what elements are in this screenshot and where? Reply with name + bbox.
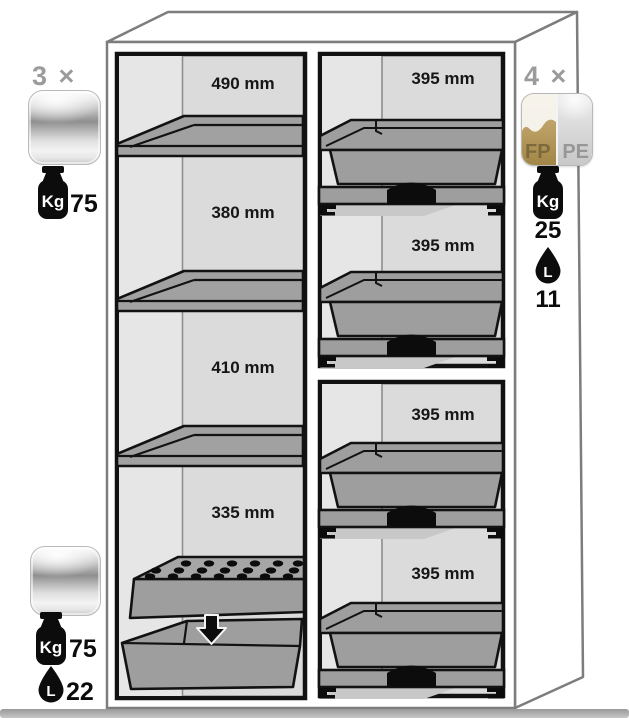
dimension-label: 380 mm bbox=[211, 203, 274, 223]
drop-icon: L bbox=[534, 246, 562, 285]
dimension-label: 395 mm bbox=[411, 236, 474, 256]
dimension-label: 395 mm bbox=[411, 69, 474, 89]
weight-icon: Kg bbox=[35, 612, 67, 666]
labels-overlay: 490 mm 380 mm 410 mm 335 mm 395 mm 395 m… bbox=[0, 0, 629, 718]
shelf-count-label: 3 × bbox=[32, 63, 76, 90]
steel-sump-icon bbox=[30, 546, 101, 616]
floor-bar bbox=[0, 709, 629, 718]
steel-shelf-icon bbox=[28, 90, 101, 165]
weight-value: 75 bbox=[69, 637, 97, 662]
fp-pe-material-icon: FP PE bbox=[521, 93, 593, 166]
dimension-label: 395 mm bbox=[411, 564, 474, 584]
drop-icon: L bbox=[37, 665, 65, 704]
weight-icon: Kg bbox=[532, 166, 564, 220]
volume-value: 22 bbox=[66, 680, 94, 705]
kg-unit-label: Kg bbox=[40, 638, 63, 657]
safety-cabinet-diagram: 490 mm 380 mm 410 mm 335 mm 395 mm 395 m… bbox=[0, 0, 629, 718]
dimension-label: 395 mm bbox=[411, 405, 474, 425]
tray-count-label: 4 × bbox=[524, 63, 568, 90]
liter-unit-label: L bbox=[46, 683, 55, 700]
dimension-label: 410 mm bbox=[211, 358, 274, 378]
weight-icon: Kg bbox=[37, 166, 69, 220]
volume-value: 11 bbox=[535, 288, 560, 312]
kg-unit-label: Kg bbox=[537, 192, 560, 211]
fp-material-half: FP bbox=[522, 94, 556, 165]
liter-unit-label: L bbox=[543, 264, 552, 281]
dimension-label: 490 mm bbox=[211, 74, 274, 94]
fp-label: FP bbox=[525, 142, 551, 162]
weight-value: 25 bbox=[535, 219, 562, 243]
kg-unit-label: Kg bbox=[42, 192, 65, 211]
pe-label: PE bbox=[562, 142, 589, 162]
pe-material-half: PE bbox=[556, 94, 592, 165]
dimension-label: 335 mm bbox=[211, 503, 274, 523]
weight-value: 75 bbox=[70, 192, 98, 217]
